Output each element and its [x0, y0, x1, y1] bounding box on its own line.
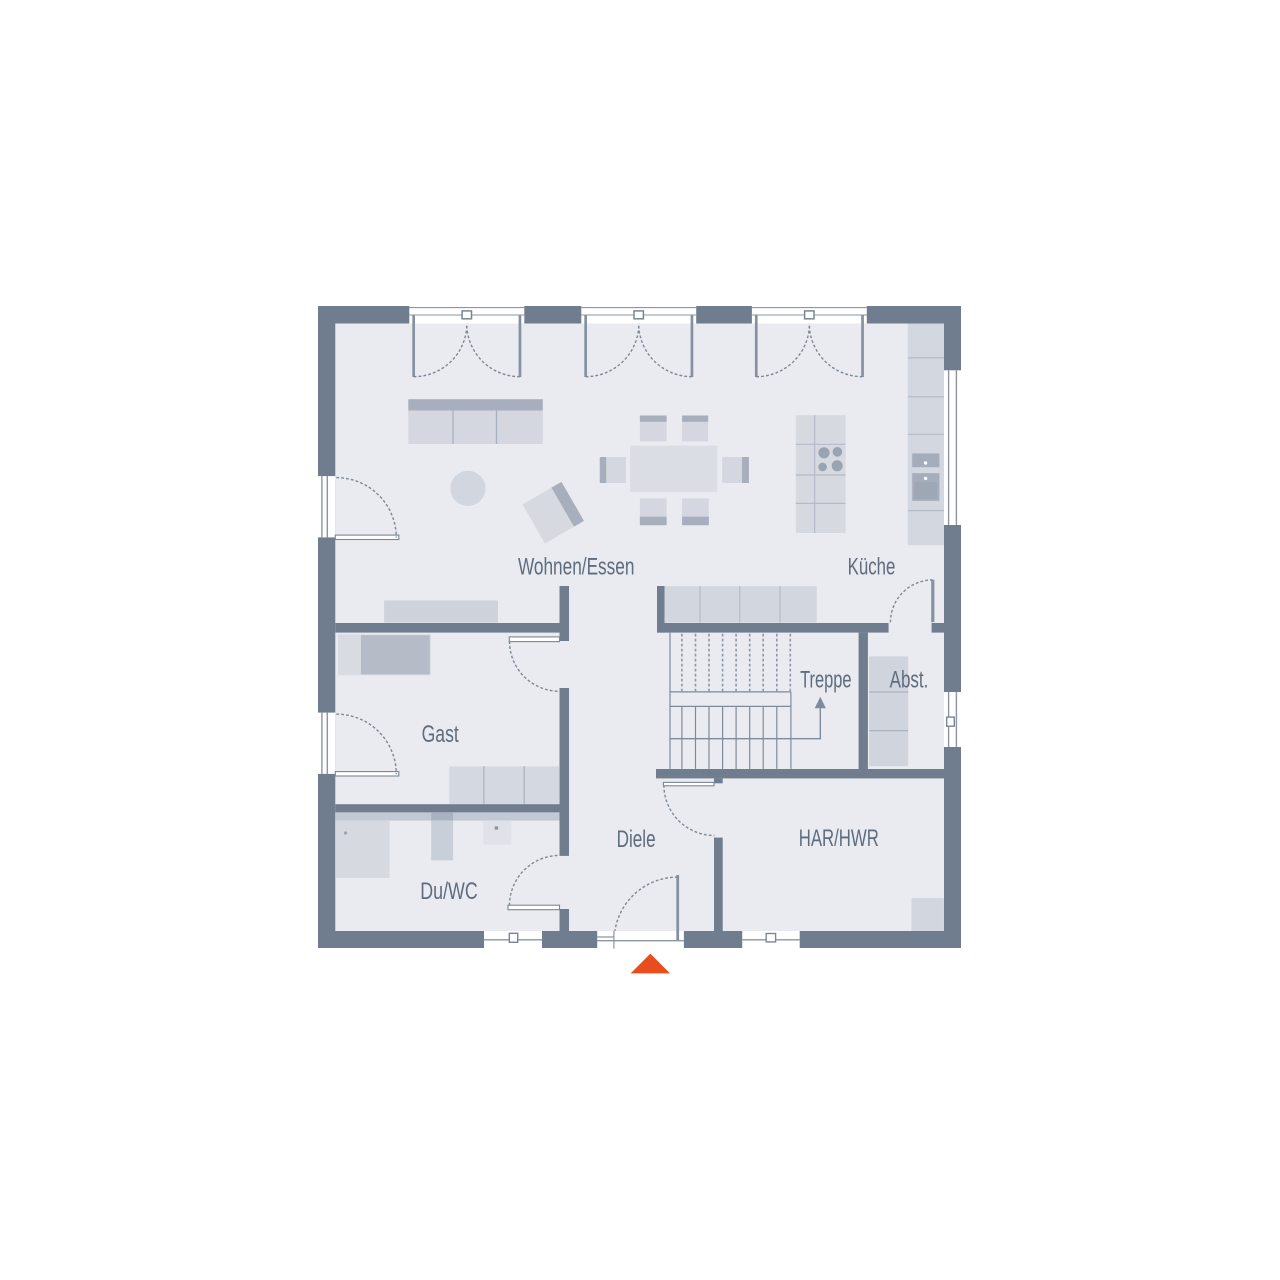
svg-text:Du/WC: Du/WC [420, 878, 477, 905]
svg-text:HAR/HWR: HAR/HWR [799, 825, 879, 852]
svg-text:Küche: Küche [848, 553, 896, 580]
svg-text:Abst.: Abst. [890, 666, 929, 693]
svg-text:Gast: Gast [422, 721, 459, 748]
svg-text:Wohnen/Essen: Wohnen/Essen [518, 553, 635, 580]
svg-text:Diele: Diele [617, 826, 656, 853]
svg-text:Treppe: Treppe [800, 667, 851, 694]
